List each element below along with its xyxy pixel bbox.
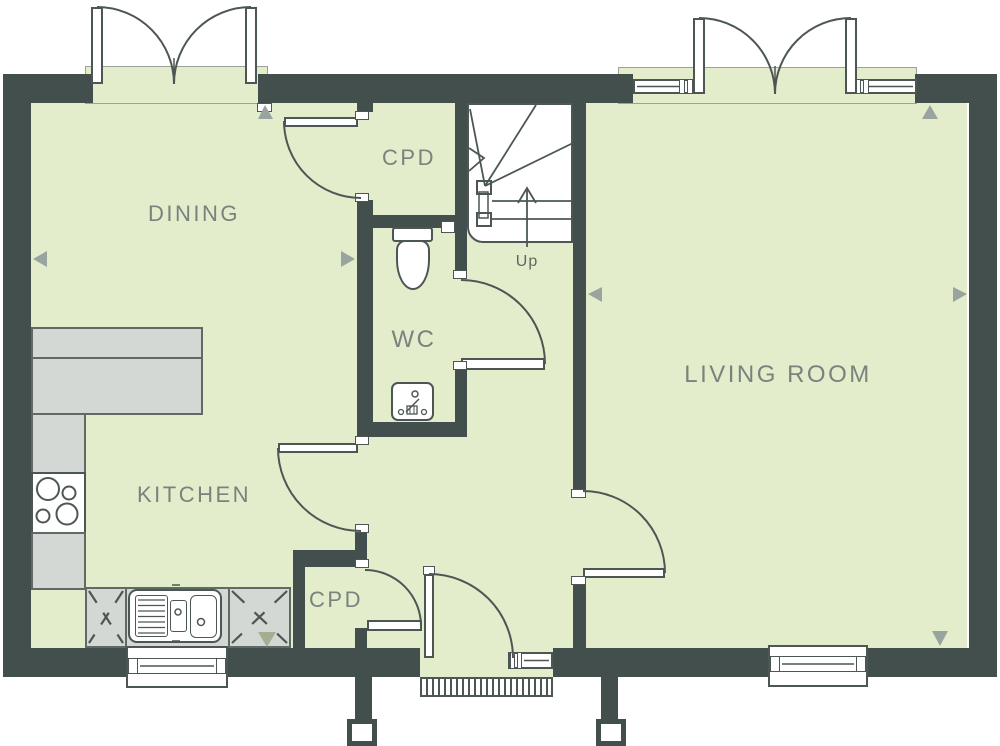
window-cap <box>863 79 869 94</box>
wall-bottom-4 <box>866 648 997 677</box>
room-label-living-room: LIVING ROOM <box>684 361 872 389</box>
jamb <box>355 524 369 533</box>
jamb <box>453 361 467 370</box>
porch-stem-left <box>355 677 372 722</box>
wall-bottom-3 <box>553 648 770 677</box>
jamb <box>571 576 586 585</box>
jamb <box>257 103 272 112</box>
room-label-wc: WC <box>392 326 437 354</box>
door-leaf-cpd-bottom <box>367 620 422 631</box>
wall-bottom-2 <box>227 648 420 677</box>
entrance-mat <box>420 677 553 697</box>
door-leaf-cpd-top <box>284 117 358 127</box>
wall-cpd2-stub-bottom <box>355 628 367 650</box>
jamb <box>355 436 369 445</box>
window-cap <box>679 79 685 94</box>
jamb <box>423 566 435 575</box>
wall-wc-stairs-upper <box>455 103 467 270</box>
window-cap <box>856 656 866 672</box>
door-leaf-kitchen <box>278 443 358 453</box>
kitchen-base-unit-1 <box>85 587 127 648</box>
sink-drainer <box>135 595 168 637</box>
kitchen-base-unit-2 <box>228 587 291 648</box>
wall-left <box>3 74 31 677</box>
room-label-cpd-bottom: CPD <box>309 587 363 613</box>
french-door-panel-living-left <box>693 18 705 94</box>
door-leaf-wc <box>461 358 545 370</box>
sink-bowl <box>190 595 217 638</box>
jamb <box>355 559 369 568</box>
window-cap <box>770 656 780 672</box>
window-cap <box>510 652 515 669</box>
floor-plan: DINING KITCHEN WC CPD CPD LIVING ROOM Up <box>0 0 1000 746</box>
wall-cpd2-stub-top <box>355 531 367 552</box>
wall-top-middle <box>258 74 633 103</box>
wall-hall-living-upper <box>573 103 586 490</box>
threshold-dining-doors <box>85 66 268 104</box>
window-band <box>128 658 226 674</box>
front-door-leaf <box>424 574 434 658</box>
french-door-panel-dining-right <box>245 7 257 84</box>
wash-basin <box>391 382 434 421</box>
jamb <box>453 270 467 279</box>
room-label-kitchen: KITCHEN <box>137 482 251 508</box>
window-cap <box>517 652 522 669</box>
wall-hall-living-lower <box>573 577 586 650</box>
french-door-panel-dining-left <box>91 7 103 84</box>
wall-wc-south <box>357 422 467 437</box>
porch-stem-right <box>601 677 618 722</box>
window-cap <box>216 658 226 674</box>
wall-right <box>969 74 997 677</box>
room-label-dining: DINING <box>148 201 240 227</box>
porch-post-left <box>347 719 377 746</box>
staircase <box>467 103 573 243</box>
kitchen-counter-left <box>31 413 86 474</box>
wall-bottom-1 <box>3 648 127 677</box>
room-label-cpd-top: CPD <box>382 145 436 171</box>
kitchen-counter-upper <box>31 357 203 415</box>
sink-mid-tray <box>170 600 187 632</box>
window-cap <box>128 658 138 674</box>
porch-post-right <box>596 719 626 746</box>
kitchen-counter-top-strip <box>31 327 203 359</box>
jamb <box>441 221 455 233</box>
door-leaf-living <box>583 568 665 578</box>
wall-wc-stairs-lower <box>455 370 467 422</box>
jamb <box>571 489 586 498</box>
stairs-up-label: Up <box>516 253 538 271</box>
hob <box>31 472 86 534</box>
jamb <box>355 111 369 120</box>
kitchen-counter-below-hob <box>31 532 86 590</box>
jamb <box>355 193 369 202</box>
window-band <box>770 656 866 672</box>
wall-dining-wc <box>357 200 373 437</box>
french-door-panel-living-right <box>845 18 857 94</box>
